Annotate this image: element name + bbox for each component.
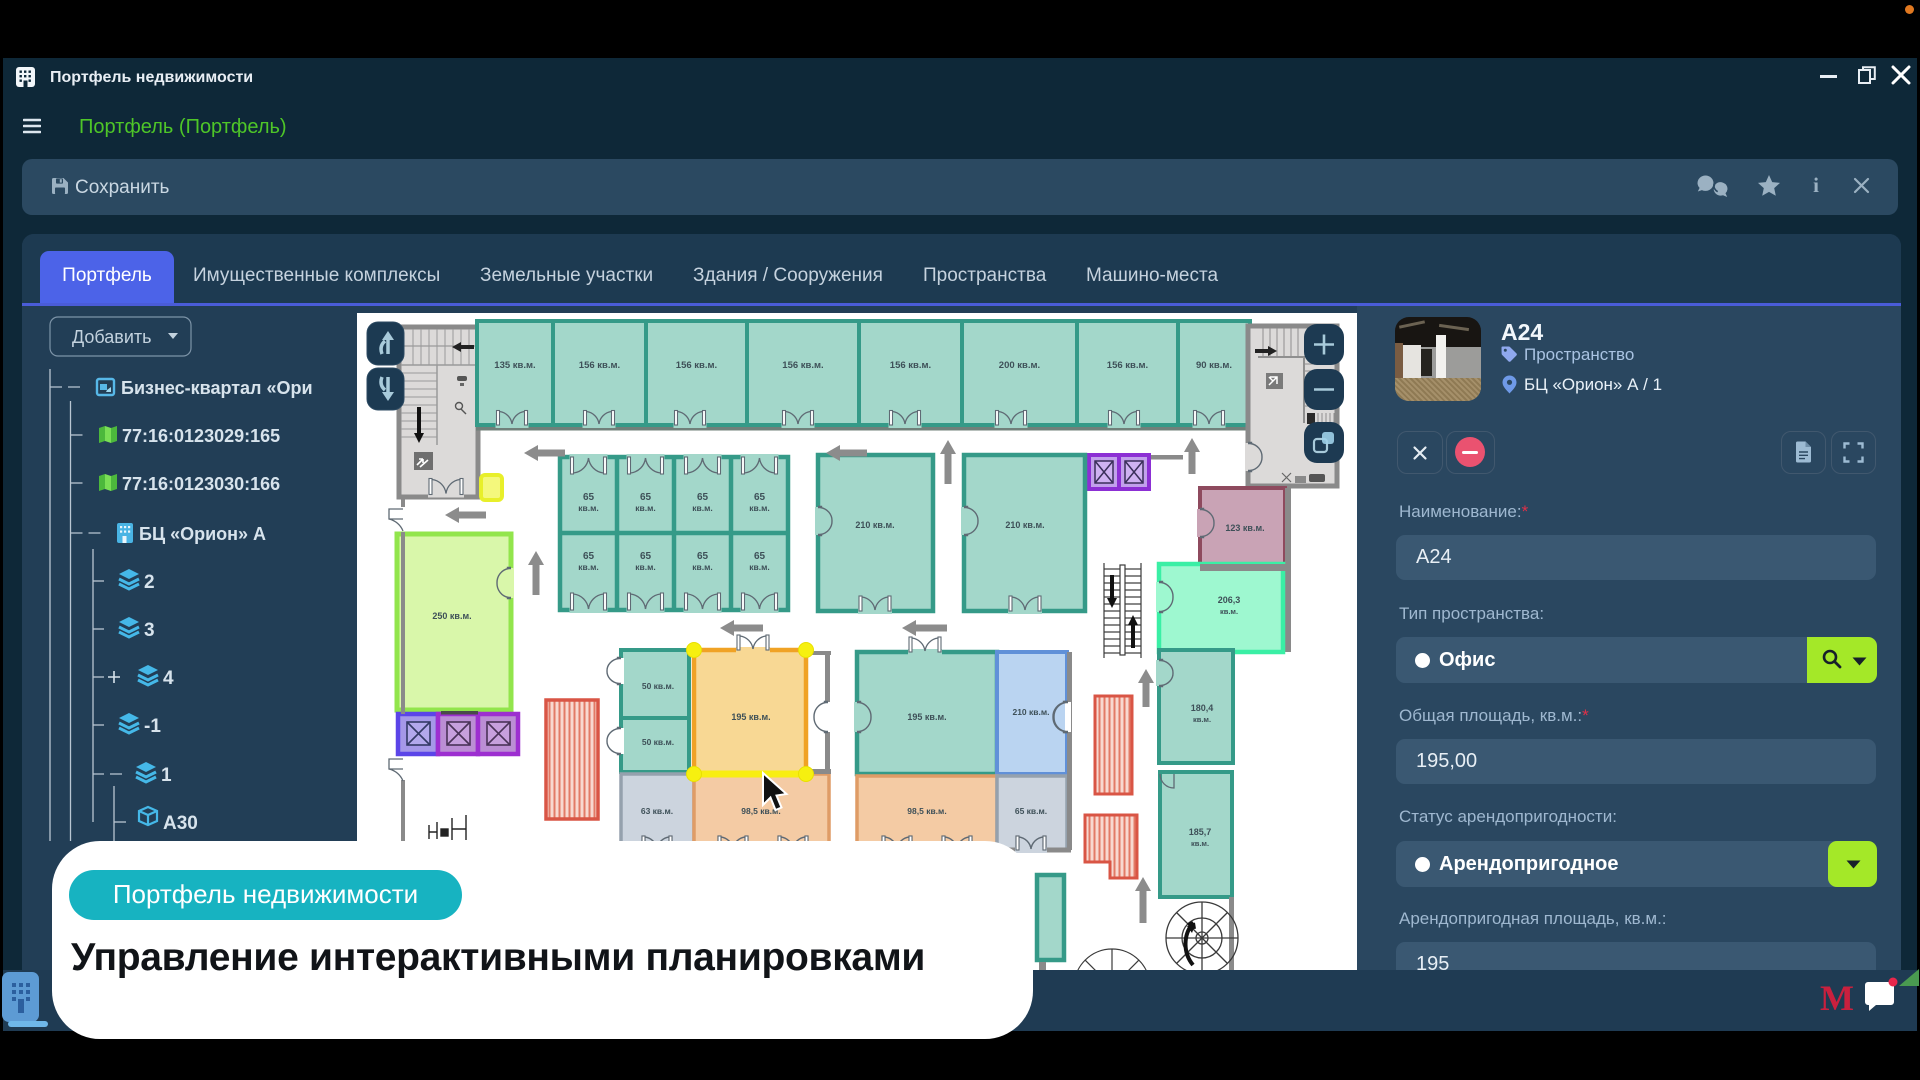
svg-text:кв.м.: кв.м. <box>1191 839 1209 848</box>
svg-text:195 кв.м.: 195 кв.м. <box>731 712 770 722</box>
svg-text:кв.м.: кв.м. <box>635 562 656 572</box>
svg-text:90 кв.м.: 90 кв.м. <box>1196 360 1232 371</box>
svg-text:65: 65 <box>697 492 709 503</box>
svg-text:2: 2 <box>144 572 155 593</box>
svg-text:156 кв.м.: 156 кв.м. <box>890 360 931 371</box>
svg-text:кв.м.: кв.м. <box>578 562 599 572</box>
svg-text:кв.м.: кв.м. <box>578 503 599 513</box>
svg-text:65: 65 <box>640 551 652 562</box>
svg-text:156 кв.м.: 156 кв.м. <box>782 360 823 371</box>
svg-text:135 кв.м.: 135 кв.м. <box>494 360 535 371</box>
svg-text:210 кв.м.: 210 кв.м. <box>1012 707 1049 717</box>
svg-text:156 кв.м.: 156 кв.м. <box>676 360 717 371</box>
svg-text:65 кв.м.: 65 кв.м. <box>1015 806 1047 816</box>
svg-text:65: 65 <box>583 551 595 562</box>
svg-text:200 кв.м.: 200 кв.м. <box>999 360 1040 371</box>
svg-text:50 кв.м.: 50 кв.м. <box>642 737 674 747</box>
svg-text:БЦ «Орион» А: БЦ «Орион» А <box>139 524 266 544</box>
svg-text:Добавить: Добавить <box>72 327 152 347</box>
svg-text:195 кв.м.: 195 кв.м. <box>907 712 946 722</box>
svg-text:50 кв.м.: 50 кв.м. <box>642 681 674 691</box>
svg-text:3: 3 <box>144 620 155 641</box>
svg-text:1: 1 <box>161 765 172 786</box>
svg-text:123 кв.м.: 123 кв.м. <box>1225 523 1264 533</box>
svg-text:180,4: 180,4 <box>1191 703 1214 713</box>
svg-text:А30: А30 <box>163 813 198 834</box>
svg-text:Бизнес-квартал «Ори: Бизнес-квартал «Ори <box>121 378 313 398</box>
svg-text:кв.м.: кв.м. <box>749 503 770 513</box>
svg-text:156 кв.м.: 156 кв.м. <box>579 360 620 371</box>
svg-text:кв.м.: кв.м. <box>692 562 713 572</box>
svg-text:210 кв.м.: 210 кв.м. <box>855 520 894 530</box>
svg-text:кв.м.: кв.м. <box>1220 607 1238 616</box>
svg-text:65: 65 <box>754 492 766 503</box>
svg-text:65: 65 <box>583 492 595 503</box>
svg-text:210 кв.м.: 210 кв.м. <box>1005 520 1044 530</box>
svg-text:кв.м.: кв.м. <box>749 562 770 572</box>
svg-text:185,7: 185,7 <box>1189 827 1212 837</box>
svg-text:77:16:0123029:165: 77:16:0123029:165 <box>122 426 280 446</box>
svg-text:63 кв.м.: 63 кв.м. <box>641 806 673 816</box>
svg-text:4: 4 <box>163 668 174 689</box>
svg-text:кв.м.: кв.м. <box>635 503 656 513</box>
svg-text:65: 65 <box>754 551 766 562</box>
svg-text:98,5 кв.м.: 98,5 кв.м. <box>907 806 946 816</box>
svg-text:-1: -1 <box>144 716 161 737</box>
svg-text:кв.м.: кв.м. <box>692 503 713 513</box>
svg-text:65: 65 <box>640 492 652 503</box>
svg-text:кв.м.: кв.м. <box>1193 715 1211 724</box>
svg-text:65: 65 <box>697 551 709 562</box>
svg-text:77:16:0123030:166: 77:16:0123030:166 <box>122 474 280 494</box>
svg-text:250 кв.м.: 250 кв.м. <box>432 611 471 621</box>
svg-text:156 кв.м.: 156 кв.м. <box>1107 360 1148 371</box>
svg-text:206,3: 206,3 <box>1218 595 1241 605</box>
